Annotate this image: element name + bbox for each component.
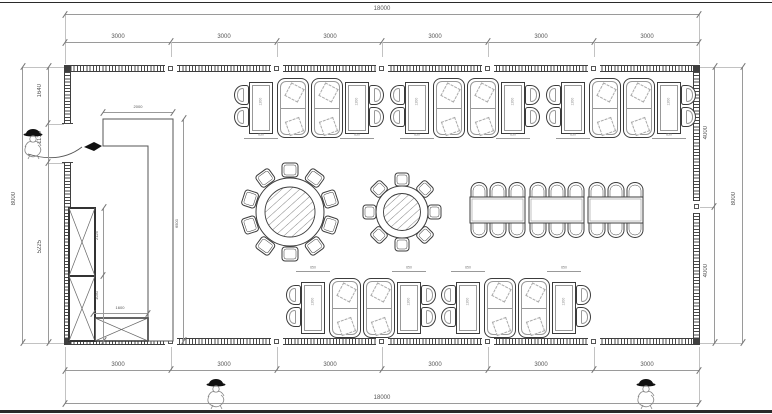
chair: [576, 307, 591, 327]
dining-table: 1200: [249, 82, 273, 134]
chair: [421, 307, 436, 327]
extension-line: [22, 67, 64, 68]
booth-sofa: [433, 78, 465, 138]
dim-top-seg: 3000: [111, 34, 124, 40]
chair: [369, 85, 384, 105]
column-corner: [693, 65, 700, 72]
chair: [286, 285, 301, 305]
dim-counter-width: 2000: [134, 105, 143, 110]
chair: [546, 107, 561, 127]
dim-low-cabinet: 1600: [116, 306, 125, 311]
sheet-top-border: [0, 2, 772, 3]
booth-sofa: [329, 278, 361, 338]
booth-sofa: [277, 78, 309, 138]
chair: [441, 307, 456, 327]
dining-table: 1200: [405, 82, 429, 134]
dim-line-counter-length: [183, 119, 184, 341]
extension-line: [699, 347, 700, 403]
floor-plan-drawing: 18000 3000 3000 3000 3000 3000 3000 3000…: [0, 0, 772, 414]
dim-table-width: 650: [244, 138, 278, 139]
extension-line: [22, 343, 64, 344]
round-table-small: [362, 172, 442, 252]
dim-line-counter-width: [103, 112, 173, 113]
column-marker: [274, 66, 279, 71]
dim-line-right-overall: [742, 67, 743, 343]
dim-cabinet-upper: 2125: [95, 231, 100, 240]
tall-cabinet: [69, 208, 95, 341]
dim-bottom-seg: 3000: [534, 362, 547, 368]
dim-top-seg: 3000: [428, 34, 441, 40]
chair: [234, 107, 249, 127]
dining-table: 1200: [501, 82, 525, 134]
column-marker: [379, 66, 384, 71]
dim-line-bottom-overall: [65, 403, 699, 404]
dim-bottom-overall: 18000: [374, 395, 391, 401]
dim-line-left-segments: [48, 67, 49, 343]
dim-table-width: 650: [296, 271, 330, 272]
dim-line-top-overall: [65, 14, 699, 15]
chair: [546, 85, 561, 105]
dim-cabinet-lower: 1030: [95, 291, 100, 300]
dim-table-width: 650: [451, 271, 485, 272]
dining-table: 1200: [345, 82, 369, 134]
chair: [681, 85, 696, 105]
booth-sofa: [484, 278, 516, 338]
table-top: [384, 194, 421, 231]
person-figure-bottom-right: [633, 376, 659, 410]
dining-table: 1200: [657, 82, 681, 134]
person-figure-bottom-left: [203, 376, 229, 410]
booth-seating-group: 1200 1200 650 650: [233, 76, 385, 142]
booth-sofa: [311, 78, 343, 138]
person-figure-entrance: [20, 126, 46, 160]
dining-table: 1200: [456, 282, 480, 334]
banquet-table-tops: [470, 197, 643, 223]
dim-top-seg: 3000: [217, 34, 230, 40]
booth-seating-group: 1200 1200 650 650: [389, 76, 541, 142]
person-icon: [20, 126, 46, 160]
dim-top-seg: 3000: [323, 34, 336, 40]
dim-right-seg: 4000: [703, 126, 709, 139]
banquet-chairs-top: [471, 183, 643, 198]
dim-table-width: 650: [340, 138, 374, 139]
sheet-bottom-border: [0, 410, 772, 413]
column-marker: [485, 66, 490, 71]
dining-table: 1200: [301, 282, 325, 334]
extension-line: [594, 42, 595, 57]
dim-counter-length: 6500: [175, 219, 180, 228]
dim-left-seg: 5225: [37, 240, 43, 253]
banquet-table: [468, 178, 646, 242]
dim-table-width: 650: [400, 138, 434, 139]
booth-seating-group: 1200 1200 650 650: [285, 276, 437, 342]
extension-line: [700, 67, 742, 68]
chair: [441, 285, 456, 305]
chair: [525, 107, 540, 127]
dim-right-seg: 4000: [703, 264, 709, 277]
banquet-chairs-bottom: [471, 223, 643, 238]
dim-top-seg: 3000: [640, 34, 653, 40]
dining-table: 1200: [552, 282, 576, 334]
dim-bottom-seg: 3000: [640, 362, 653, 368]
column-corner: [693, 338, 700, 345]
dim-bottom-seg: 3000: [323, 362, 336, 368]
chair: [369, 107, 384, 127]
chair: [421, 285, 436, 305]
dining-table: 1200: [397, 282, 421, 334]
dim-table-width: 650: [392, 271, 426, 272]
dim-bottom-seg: 3000: [428, 362, 441, 368]
extension-line: [65, 347, 66, 403]
chair: [525, 85, 540, 105]
extension-line: [171, 42, 172, 57]
dim-right-overall: 8000: [731, 192, 737, 205]
booth-sofa: [363, 278, 395, 338]
extension-line: [382, 42, 383, 57]
booth-seating-group: 1200 1200 650 650: [440, 276, 592, 342]
extension-line: [277, 42, 278, 57]
chair: [234, 85, 249, 105]
column-marker: [694, 204, 699, 209]
booth-sofa: [589, 78, 621, 138]
column-marker: [274, 339, 279, 344]
booth-sofa: [518, 278, 550, 338]
chair: [576, 285, 591, 305]
booth-seating-group: 1200 1200 650 650: [545, 76, 697, 142]
dim-line-low-cabinet: [93, 313, 148, 314]
column-marker: [591, 66, 596, 71]
chair: [286, 307, 301, 327]
booth-sofa: [467, 78, 499, 138]
dim-table-width: 650: [652, 138, 686, 139]
person-icon: [203, 376, 229, 410]
l-shaped-counter: [103, 119, 173, 341]
dim-left-seg: 1640: [37, 84, 43, 97]
dim-bottom-seg: 3000: [217, 362, 230, 368]
column-marker: [168, 66, 173, 71]
extension-line: [488, 42, 489, 57]
extension-line: [700, 343, 742, 344]
dim-left-overall: 8000: [11, 192, 17, 205]
dim-bottom-seg: 3000: [111, 362, 124, 368]
dim-table-width: 650: [556, 138, 590, 139]
dining-table: 1200: [561, 82, 585, 134]
dim-top-seg: 3000: [534, 34, 547, 40]
table-top: [265, 187, 315, 237]
booth-sofa: [623, 78, 655, 138]
person-icon: [633, 376, 659, 410]
dim-table-width: 650: [496, 138, 530, 139]
dim-line-left-overall: [22, 67, 23, 343]
dim-top-overall: 18000: [374, 6, 391, 12]
chair: [681, 107, 696, 127]
dim-table-width: 650: [547, 271, 581, 272]
column-corner: [64, 65, 71, 72]
chair: [390, 107, 405, 127]
round-table-large: [240, 162, 340, 262]
chair: [390, 85, 405, 105]
